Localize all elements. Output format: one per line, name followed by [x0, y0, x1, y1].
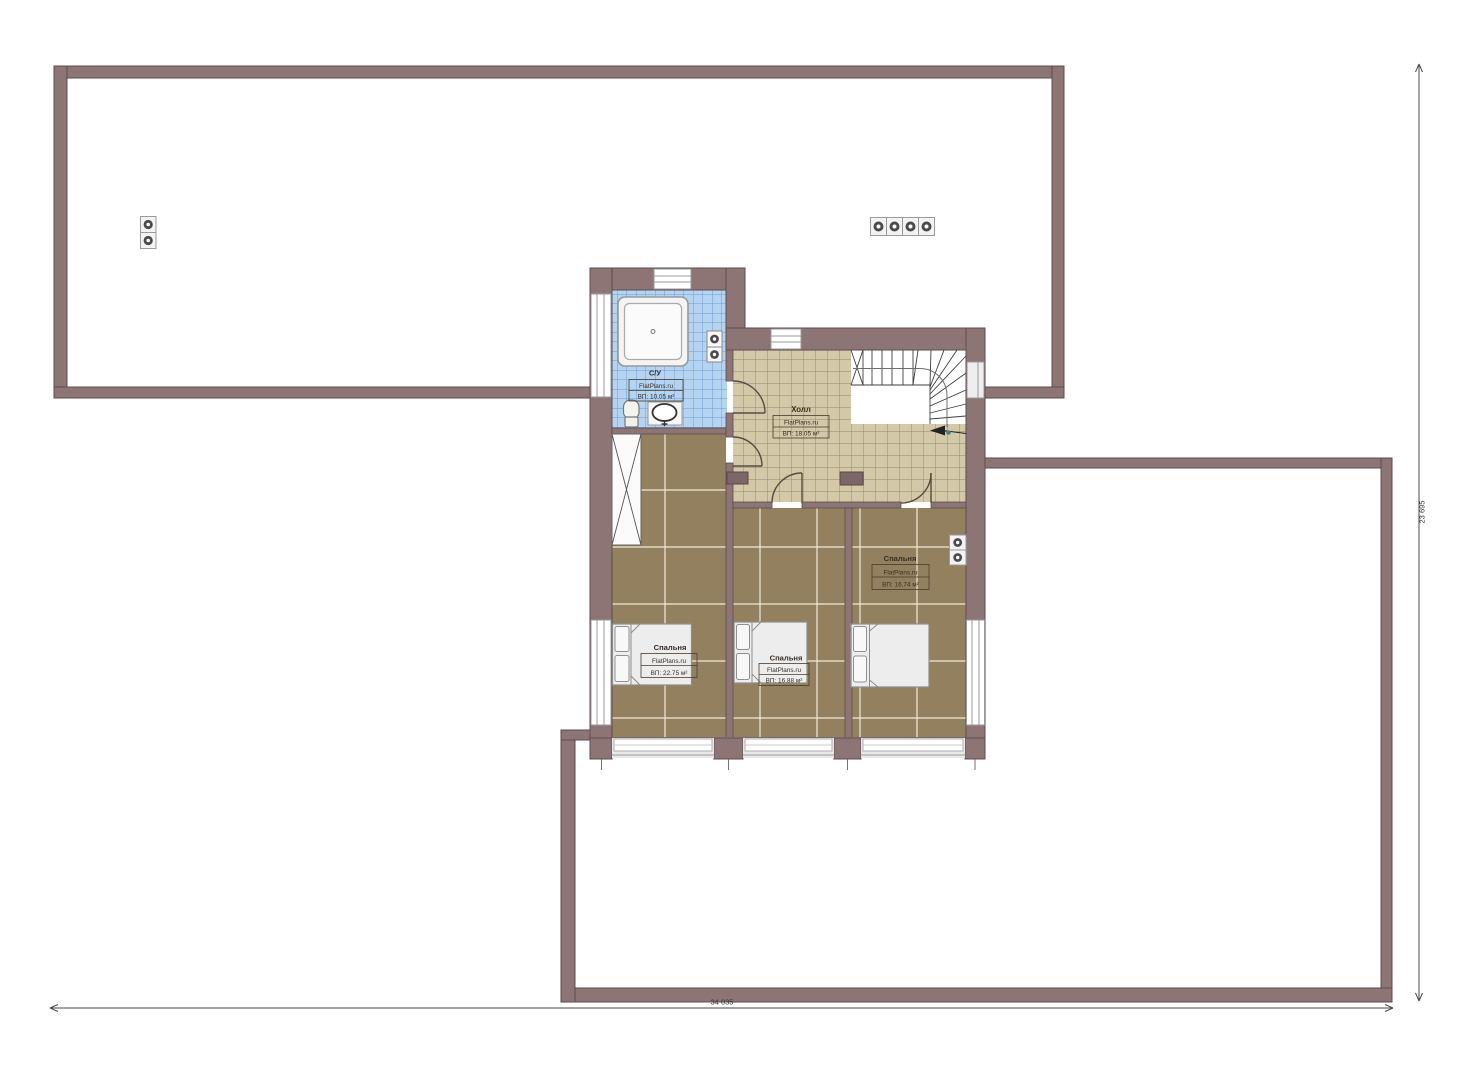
svg-text:С/У: С/У	[649, 369, 662, 378]
svg-text:Спальня: Спальня	[770, 654, 803, 663]
svg-text:Спальня: Спальня	[654, 643, 687, 652]
svg-text:ВП: 10.05 м²: ВП: 10.05 м²	[638, 394, 675, 401]
svg-text:FlatPlans.ru: FlatPlans.ru	[883, 570, 918, 577]
svg-text:Спальня: Спальня	[884, 554, 917, 563]
svg-text:ВП: 16.88 м²: ВП: 16.88 м²	[766, 678, 803, 685]
svg-text:ВП: 16.74 м²: ВП: 16.74 м²	[882, 582, 919, 589]
svg-text:23 695: 23 695	[1418, 501, 1427, 524]
svg-text:Холл: Холл	[791, 405, 811, 414]
svg-text:FlatPlans.ru: FlatPlans.ru	[652, 658, 687, 665]
svg-text:FlatPlans.ru: FlatPlans.ru	[639, 383, 674, 390]
svg-text:ВП: 18.05 м²: ВП: 18.05 м²	[783, 431, 820, 438]
svg-text:FlatPlans.ru: FlatPlans.ru	[767, 667, 802, 674]
svg-text:ВП: 22.75 м²: ВП: 22.75 м²	[651, 670, 688, 677]
svg-text:34 035: 34 035	[711, 998, 734, 1007]
svg-text:FlatPlans.ru: FlatPlans.ru	[784, 420, 819, 427]
